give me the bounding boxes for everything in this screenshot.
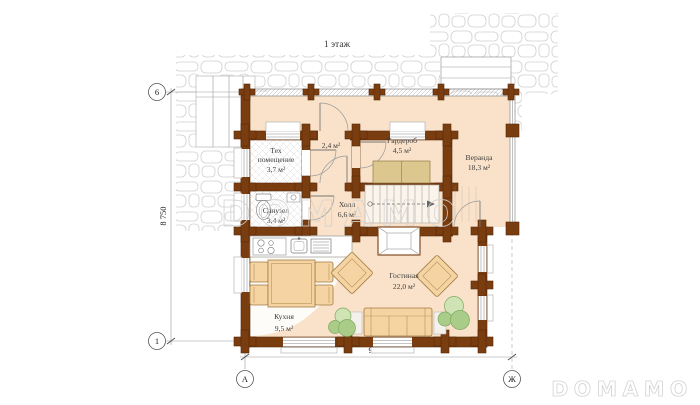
room-label-living: Гостиная <box>389 271 419 280</box>
axis-1: 1 <box>155 336 159 346</box>
entry-steps-icon <box>441 57 511 89</box>
sofa <box>350 308 446 336</box>
stove-icon <box>253 238 286 255</box>
page-title: 1 этаж <box>324 40 351 50</box>
axis-a: А <box>242 374 249 384</box>
room-label-wardrobe: Гардероб <box>387 136 417 145</box>
watermark-center: DOMAMO <box>221 194 466 235</box>
watermark-corner: DOMAMO <box>551 377 693 401</box>
room-label-tech-2: помещение <box>258 155 295 164</box>
room-area-entry: 2,4 м² <box>322 141 341 150</box>
room-area-tech: 3,7 м² <box>267 165 286 174</box>
wardrobe-closet <box>373 161 430 183</box>
room-area-wardrobe: 4,5 м² <box>393 146 412 155</box>
room-label-tech: Тех <box>270 146 282 155</box>
room-label-veranda: Веранда <box>466 153 494 162</box>
room-area-living: 22,0 м² <box>393 282 416 291</box>
axis-6: 6 <box>155 87 159 97</box>
floor-plan-drawing: 9 400 8 750 6 1 А Ж <box>0 0 700 405</box>
sink-icon <box>291 237 307 253</box>
axis-zh: Ж <box>508 374 516 384</box>
room-label-kitchen: Кухня <box>274 312 294 321</box>
drainer-icon <box>311 239 331 253</box>
dimension-height: 8 750 <box>158 206 168 225</box>
room-area-kitchen: 9,5 м² <box>275 324 294 333</box>
kitchen-counter <box>250 236 352 257</box>
room-area-veranda: 18,3 м² <box>468 163 491 172</box>
